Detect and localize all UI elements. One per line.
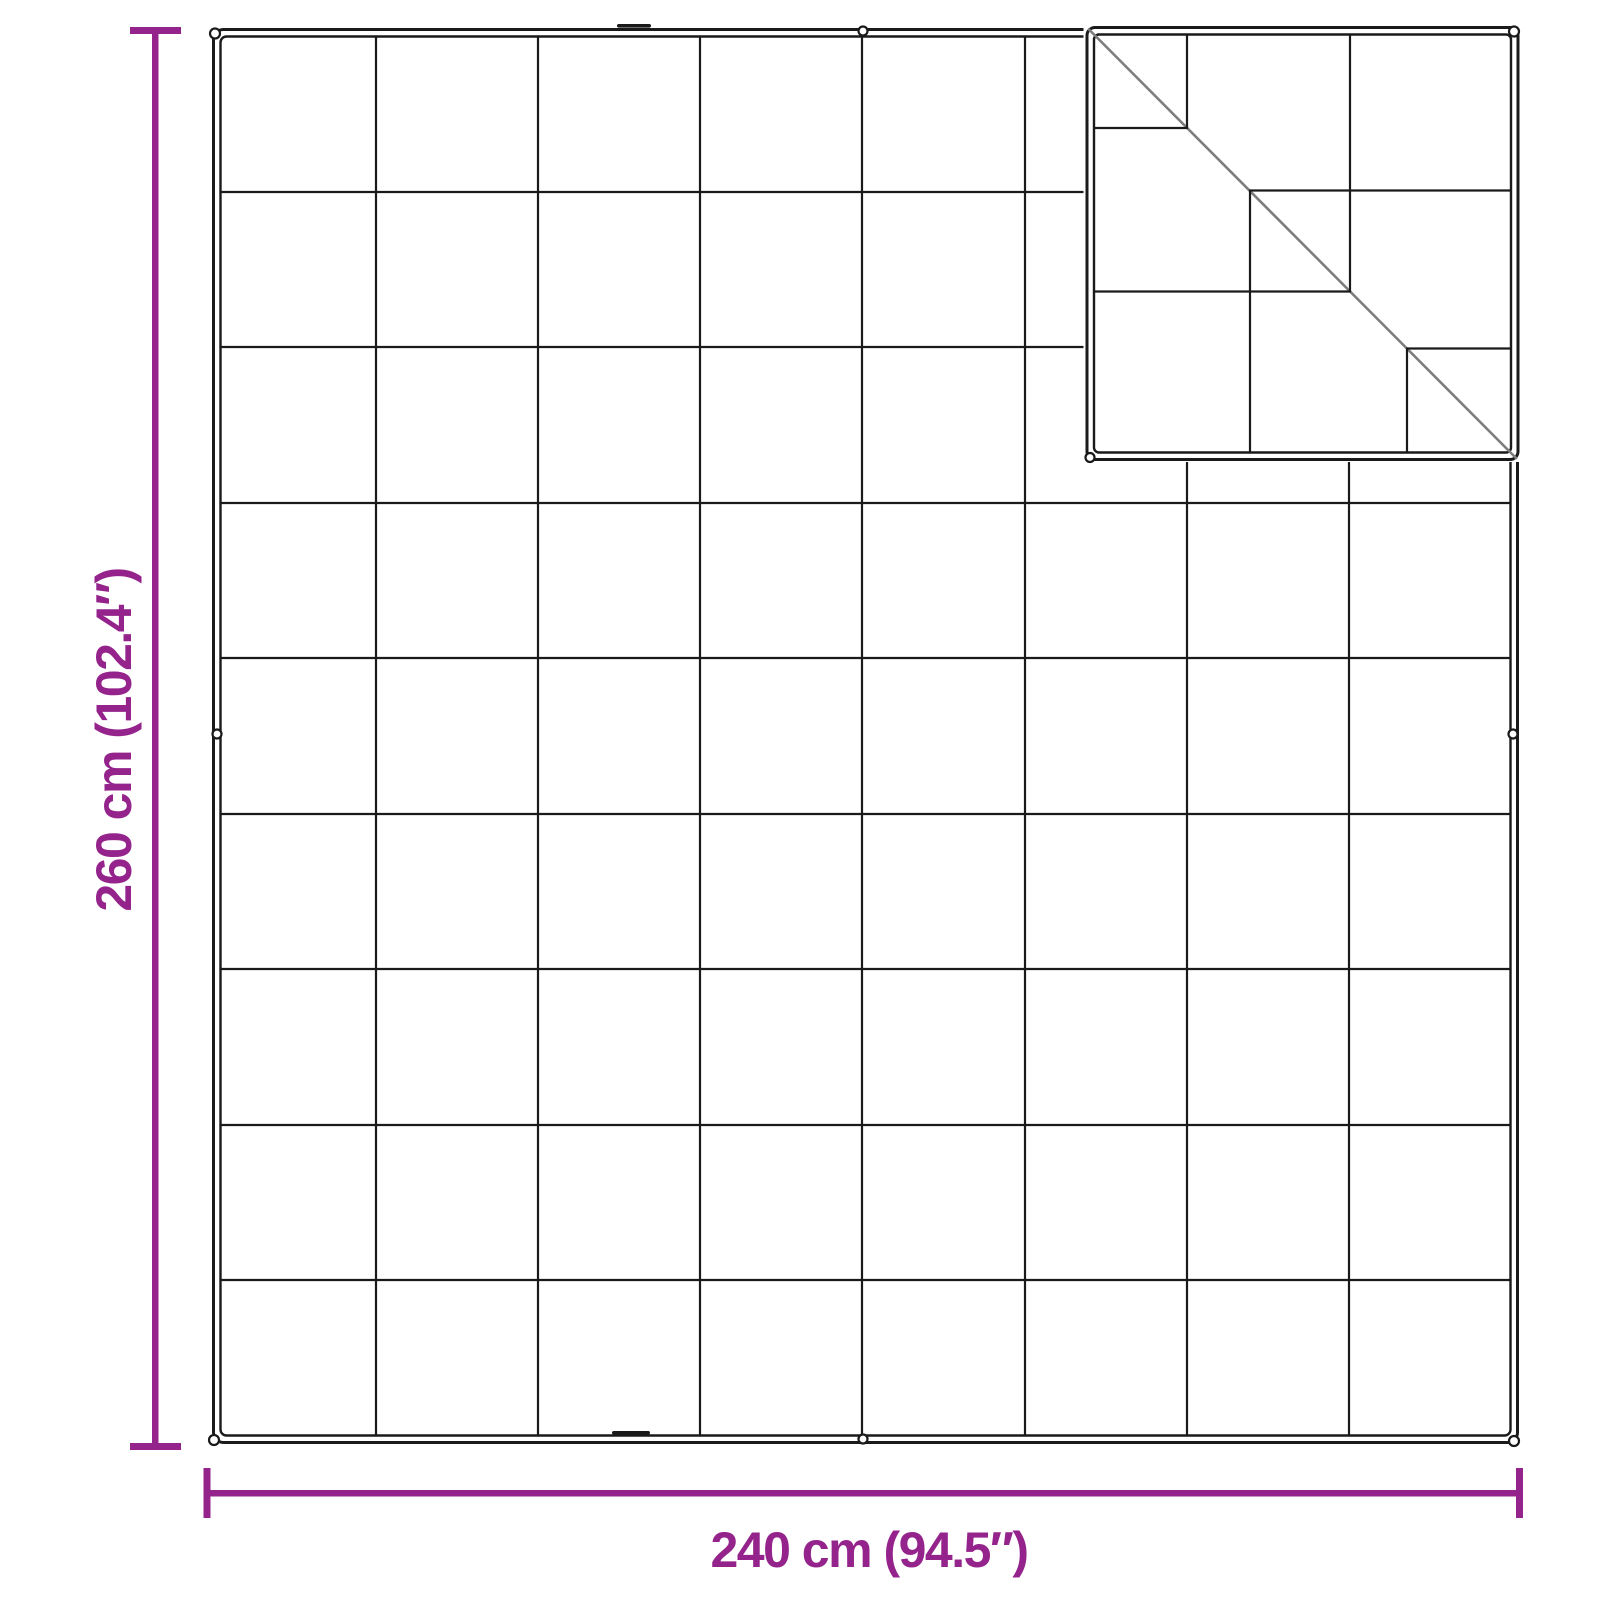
corner-eyelet bbox=[209, 1435, 219, 1445]
stitch-mark bbox=[617, 24, 651, 28]
height-dimension-label: 260 cm (102.4″) bbox=[86, 568, 142, 911]
height-dimension-line bbox=[152, 30, 159, 1447]
edge-eyelet bbox=[1509, 730, 1518, 739]
height-dimension-cap-bottom bbox=[130, 1443, 181, 1450]
width-dimension: 240 cm (94.5″) bbox=[204, 1468, 1524, 1578]
corner-eyelet bbox=[1509, 27, 1519, 37]
width-dimension-label: 240 cm (94.5″) bbox=[710, 1522, 1027, 1578]
stitch-marks bbox=[612, 24, 651, 1435]
corner-eyelet bbox=[210, 29, 220, 39]
height-dimension: 260 cm (102.4″) bbox=[86, 27, 181, 1450]
edge-eyelet bbox=[859, 1435, 868, 1444]
edge-eyelet bbox=[213, 730, 222, 739]
blanket-dimension-diagram: 260 cm (102.4″) 240 cm (94.5″) bbox=[0, 0, 1600, 1600]
edge-eyelet bbox=[859, 27, 868, 36]
width-dimension-cap-right bbox=[1516, 1468, 1523, 1518]
diagram-canvas: 260 cm (102.4″) 240 cm (94.5″) bbox=[0, 0, 1600, 1600]
height-dimension-cap-top bbox=[130, 27, 181, 34]
width-dimension-line bbox=[207, 1490, 1520, 1497]
corner-eyelet bbox=[1509, 1436, 1519, 1446]
folded-corner bbox=[1084, 24, 1523, 463]
stitch-mark bbox=[612, 1431, 650, 1435]
width-dimension-cap-left bbox=[204, 1468, 211, 1518]
corner-eyelet bbox=[1086, 453, 1095, 462]
